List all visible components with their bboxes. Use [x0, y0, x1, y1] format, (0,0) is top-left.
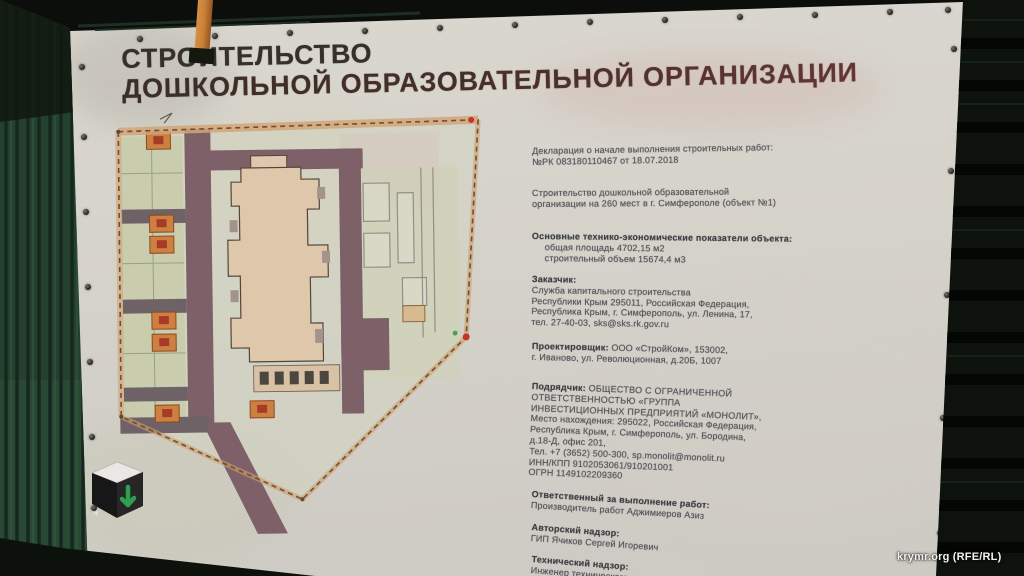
grommet [362, 28, 368, 34]
grommet [948, 168, 954, 174]
grommet [437, 25, 443, 31]
text-line: организации на 260 мест в г. Симферополе… [532, 196, 882, 209]
small-structure [403, 305, 425, 321]
grommet [937, 530, 943, 536]
grommet [512, 22, 518, 28]
indicators-block: Основные технико-экономические показател… [532, 231, 882, 267]
contractor-block: Подрядчик: ОБЩЕСТВО С ОГРАНИЧЕННОЙ ОТВЕТ… [528, 381, 881, 492]
grommet [81, 134, 87, 140]
monolit-logo [86, 456, 148, 522]
grommet [662, 17, 668, 23]
grommet [287, 30, 293, 36]
grommet [940, 415, 946, 421]
grommet [87, 359, 93, 365]
grommet [951, 46, 957, 52]
grommet [137, 36, 143, 42]
grommet [91, 505, 97, 511]
watermark: krymr.org (RFE/RL) [897, 551, 1001, 563]
text-line: строительный объем 15674,4 м3 [532, 253, 882, 267]
grommet [887, 9, 893, 15]
grommet [737, 14, 743, 20]
grommet [945, 7, 951, 13]
grommet [587, 19, 593, 25]
site-plan [100, 106, 501, 539]
designer-block: Проектировщик: ООО «СтройКом», 153002, г… [532, 341, 882, 370]
declaration-block: Декларация о начале выполнения строитель… [532, 141, 882, 168]
info-column: Декларация о начале выполнения строитель… [532, 0, 882, 576]
block-heading: Подрядчик: [532, 381, 587, 393]
block-heading: Проектировщик: [532, 341, 609, 353]
grommet [79, 64, 85, 70]
construction-banner-photo: СТРОИТЕЛЬСТВО ДОШКОЛЬНОЙ ОБРАЗОВАТЕЛЬНОЙ… [0, 0, 1024, 576]
project-block: Строительство дошкольной образовательной… [532, 186, 882, 210]
grommet [85, 284, 91, 290]
grommet [944, 292, 950, 298]
survey-mark [160, 113, 172, 123]
building-footprint [227, 167, 330, 362]
block-heading: Заказчик: [532, 274, 577, 285]
customer-block: Заказчик: Служба капитального строительс… [531, 274, 882, 333]
grommet [89, 434, 95, 440]
grommet [212, 33, 218, 39]
grommet [812, 12, 818, 18]
grommet [83, 209, 89, 215]
